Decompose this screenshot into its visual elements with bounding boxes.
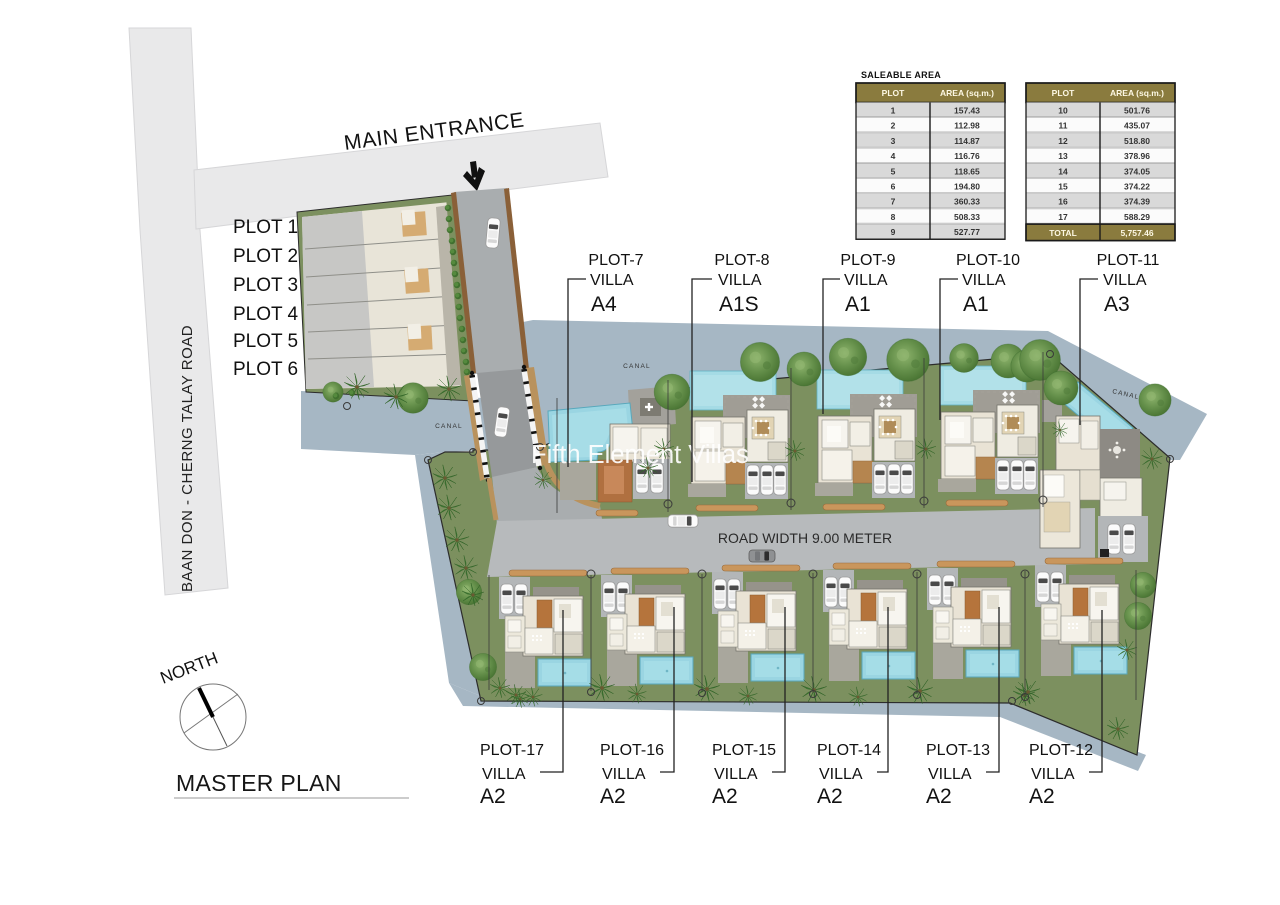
svg-text:8: 8 bbox=[891, 212, 896, 222]
svg-text:AREA (sq.m.): AREA (sq.m.) bbox=[940, 88, 994, 98]
svg-text:MASTER PLAN: MASTER PLAN bbox=[176, 770, 342, 796]
svg-text:VILLA: VILLA bbox=[718, 272, 762, 289]
svg-text:501.76: 501.76 bbox=[1124, 106, 1150, 116]
svg-text:A2: A2 bbox=[817, 785, 843, 808]
svg-text:435.07: 435.07 bbox=[1124, 121, 1150, 131]
svg-text:378.96: 378.96 bbox=[1124, 151, 1150, 161]
svg-text:116.76: 116.76 bbox=[954, 151, 980, 161]
svg-text:194.80: 194.80 bbox=[954, 182, 980, 192]
svg-text:A1S: A1S bbox=[719, 293, 759, 316]
svg-text:11: 11 bbox=[1059, 121, 1068, 131]
svg-text:114.87: 114.87 bbox=[954, 136, 980, 146]
svg-text:TOTAL: TOTAL bbox=[1049, 228, 1077, 238]
svg-text:PLOT-16: PLOT-16 bbox=[600, 742, 664, 759]
svg-text:5,757.46: 5,757.46 bbox=[1120, 228, 1153, 238]
svg-text:VILLA: VILLA bbox=[590, 272, 634, 289]
svg-text:A1: A1 bbox=[845, 293, 871, 316]
svg-text:2: 2 bbox=[891, 121, 896, 131]
svg-text:VILLA: VILLA bbox=[1031, 766, 1075, 783]
svg-text:588.29: 588.29 bbox=[1124, 212, 1150, 222]
svg-text:A4: A4 bbox=[591, 293, 617, 316]
svg-text:A1: A1 bbox=[963, 293, 989, 316]
svg-text:17: 17 bbox=[1058, 212, 1068, 222]
svg-text:PLOT-9: PLOT-9 bbox=[840, 252, 895, 269]
svg-text:9: 9 bbox=[891, 227, 896, 237]
svg-text:A2: A2 bbox=[926, 785, 952, 808]
svg-text:4: 4 bbox=[891, 151, 896, 161]
svg-text:PLOT 6: PLOT 6 bbox=[233, 359, 298, 380]
svg-text:12: 12 bbox=[1058, 136, 1068, 146]
svg-text:7: 7 bbox=[891, 197, 896, 207]
svg-text:3: 3 bbox=[891, 136, 896, 146]
svg-text:PLOT-8: PLOT-8 bbox=[714, 252, 769, 269]
svg-text:16: 16 bbox=[1058, 197, 1068, 207]
svg-text:PLOT-11: PLOT-11 bbox=[1097, 252, 1160, 269]
svg-text:374.22: 374.22 bbox=[1124, 182, 1150, 192]
svg-text:VILLA: VILLA bbox=[1103, 272, 1147, 289]
svg-text:A2: A2 bbox=[480, 785, 506, 808]
svg-text:CANAL: CANAL bbox=[623, 363, 651, 370]
svg-text:A2: A2 bbox=[712, 785, 738, 808]
svg-text:15: 15 bbox=[1058, 182, 1068, 192]
svg-text:A2: A2 bbox=[600, 785, 626, 808]
svg-text:1: 1 bbox=[891, 106, 896, 116]
svg-text:PLOT: PLOT bbox=[1052, 88, 1075, 98]
svg-text:10: 10 bbox=[1058, 106, 1068, 116]
svg-text:PLOT-14: PLOT-14 bbox=[817, 742, 881, 759]
svg-text:PLOT 2: PLOT 2 bbox=[233, 246, 298, 267]
svg-text:VILLA: VILLA bbox=[844, 272, 888, 289]
svg-text:VILLA: VILLA bbox=[714, 766, 758, 783]
svg-text:PLOT 1: PLOT 1 bbox=[233, 217, 298, 238]
svg-text:112.98: 112.98 bbox=[954, 121, 980, 131]
svg-text:A2: A2 bbox=[1029, 785, 1055, 808]
svg-text:14: 14 bbox=[1058, 166, 1068, 176]
svg-text:508.33: 508.33 bbox=[954, 212, 980, 222]
svg-text:PLOT 3: PLOT 3 bbox=[233, 275, 298, 296]
svg-text:PLOT-7: PLOT-7 bbox=[588, 252, 643, 269]
svg-text:CANAL: CANAL bbox=[435, 423, 463, 430]
svg-text:VILLA: VILLA bbox=[602, 766, 646, 783]
svg-text:AREA (sq.m.): AREA (sq.m.) bbox=[1110, 88, 1164, 98]
svg-text:PLOT 5: PLOT 5 bbox=[233, 331, 298, 352]
svg-text:Fifth Element Villas: Fifth Element Villas bbox=[531, 441, 749, 469]
svg-text:VILLA: VILLA bbox=[482, 766, 526, 783]
svg-text:PLOT-13: PLOT-13 bbox=[926, 742, 990, 759]
svg-text:PLOT-12: PLOT-12 bbox=[1029, 742, 1093, 759]
svg-text:6: 6 bbox=[891, 182, 896, 192]
svg-text:PLOT-15: PLOT-15 bbox=[712, 742, 776, 759]
svg-text:PLOT 4: PLOT 4 bbox=[233, 304, 299, 325]
svg-text:VILLA: VILLA bbox=[928, 766, 972, 783]
svg-text:360.33: 360.33 bbox=[954, 197, 980, 207]
svg-text:527.77: 527.77 bbox=[954, 227, 980, 237]
svg-text:13: 13 bbox=[1058, 151, 1068, 161]
svg-text:5: 5 bbox=[891, 166, 896, 176]
svg-text:BAAN DON - CHERNG TALAY ROAD: BAAN DON - CHERNG TALAY ROAD bbox=[179, 325, 196, 592]
svg-text:VILLA: VILLA bbox=[962, 272, 1006, 289]
svg-text:374.39: 374.39 bbox=[1124, 197, 1150, 207]
svg-text:118.65: 118.65 bbox=[954, 166, 980, 176]
svg-text:374.05: 374.05 bbox=[1124, 166, 1150, 176]
svg-text:A3: A3 bbox=[1104, 293, 1130, 316]
svg-text:SALEABLE AREA: SALEABLE AREA bbox=[861, 70, 941, 80]
svg-text:ROAD WIDTH 9.00 METER: ROAD WIDTH 9.00 METER bbox=[718, 530, 892, 546]
svg-text:PLOT-17: PLOT-17 bbox=[480, 742, 544, 759]
svg-text:VILLA: VILLA bbox=[819, 766, 863, 783]
svg-text:PLOT-10: PLOT-10 bbox=[956, 252, 1020, 269]
svg-text:PLOT: PLOT bbox=[882, 88, 905, 98]
svg-text:518.80: 518.80 bbox=[1124, 136, 1150, 146]
svg-text:157.43: 157.43 bbox=[954, 106, 980, 116]
